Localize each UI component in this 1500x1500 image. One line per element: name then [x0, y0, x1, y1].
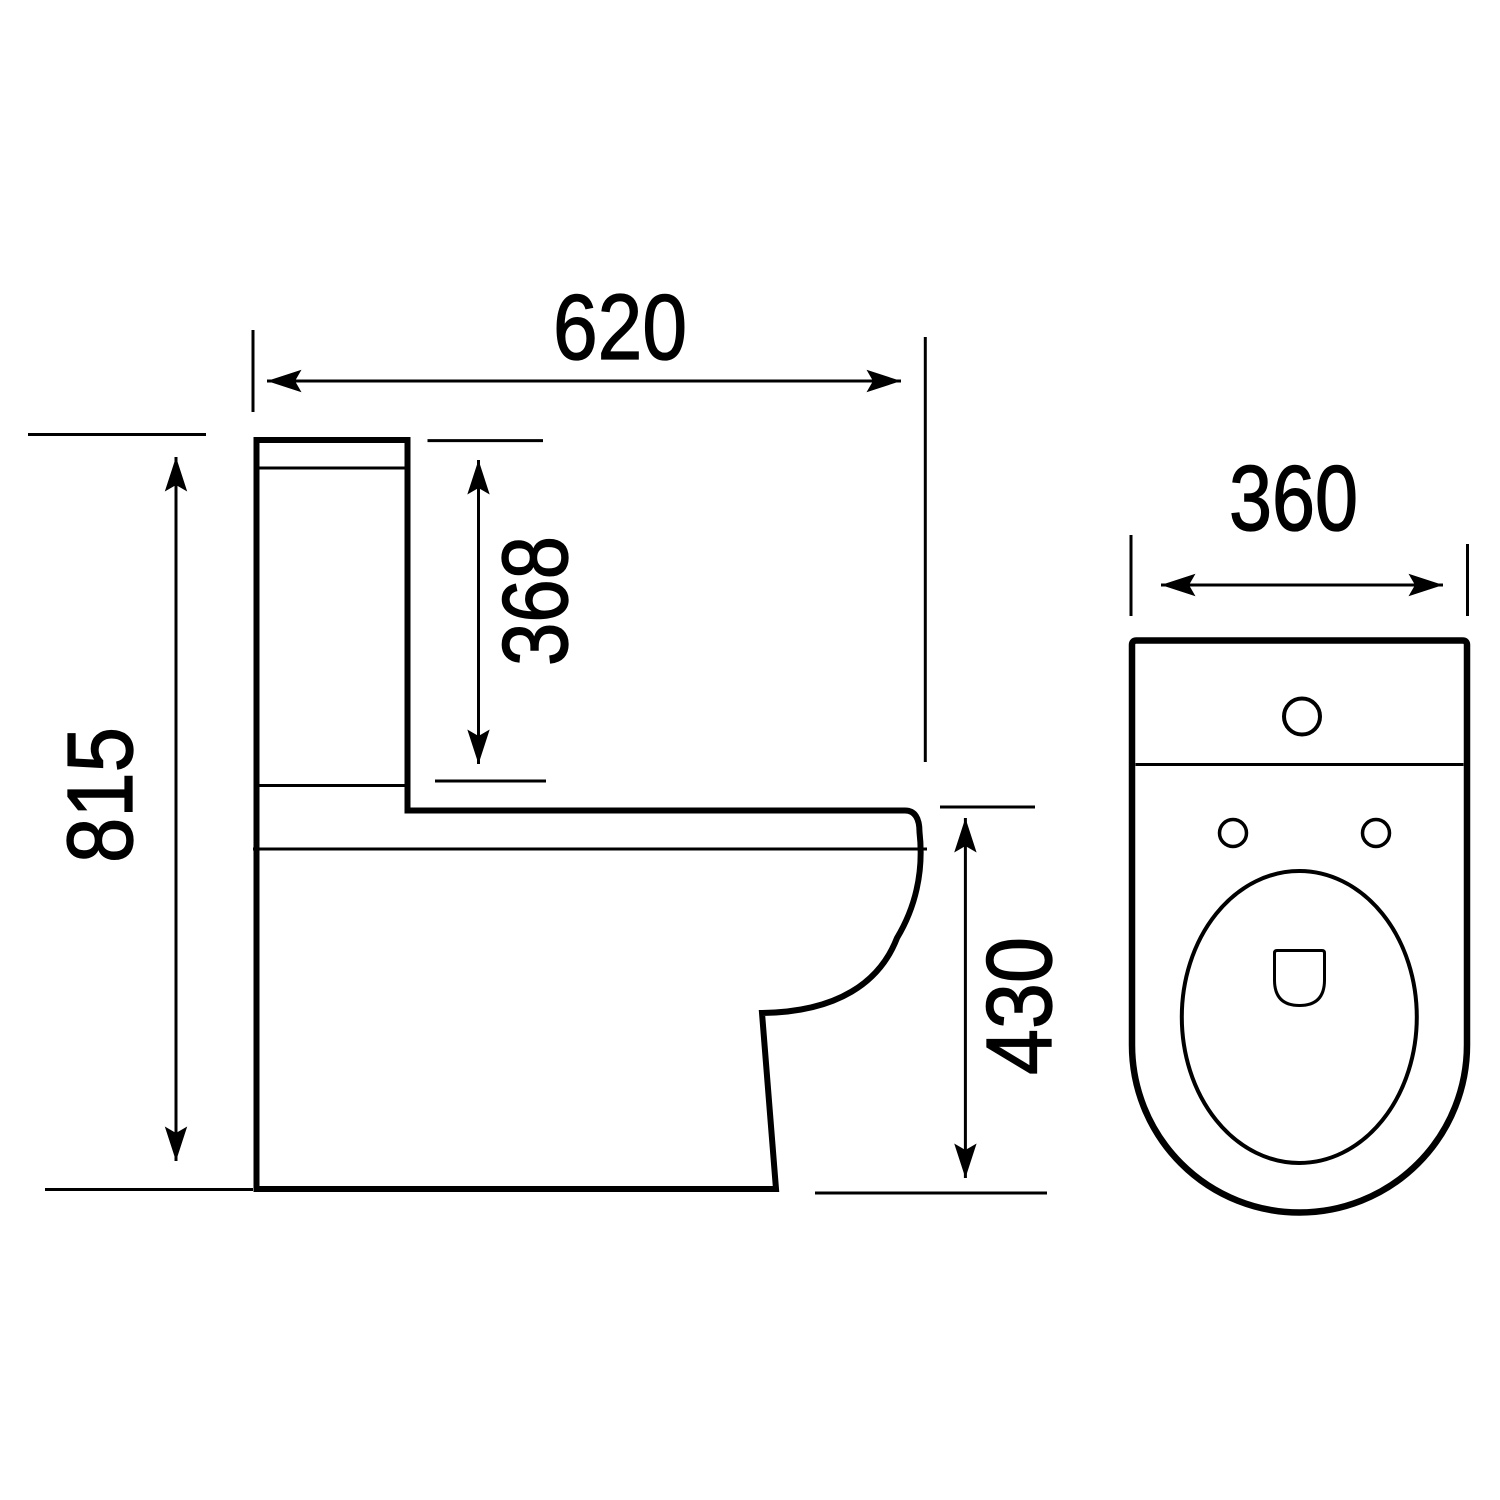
- svg-text:360: 360: [1229, 446, 1358, 550]
- svg-text:815: 815: [48, 727, 152, 863]
- svg-text:430: 430: [967, 937, 1071, 1075]
- svg-text:620: 620: [553, 275, 687, 379]
- svg-text:368: 368: [483, 536, 587, 666]
